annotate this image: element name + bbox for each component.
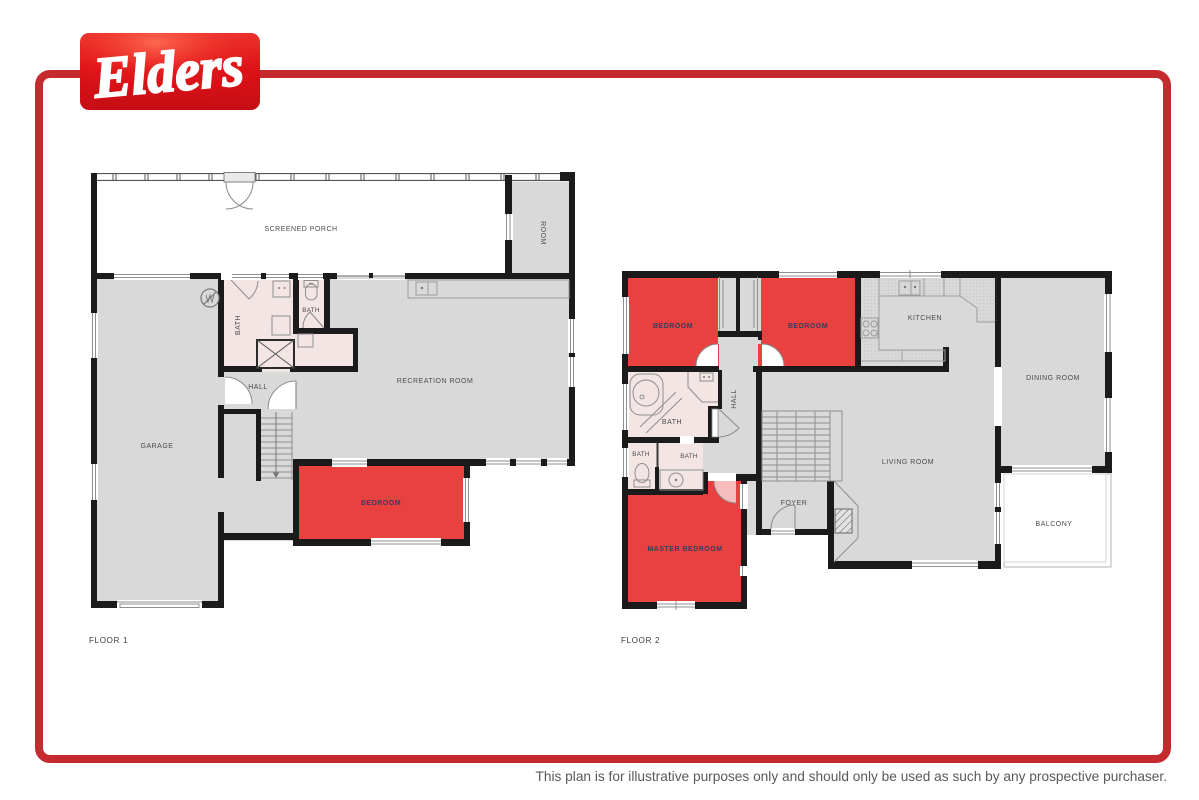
svg-text:KITCHEN: KITCHEN [908,315,942,322]
svg-text:RECREATION ROOM: RECREATION ROOM [397,378,474,385]
svg-text:FLOOR 2: FLOOR 2 [621,636,660,645]
svg-text:BALCONY: BALCONY [1036,521,1073,528]
svg-text:BEDROOM: BEDROOM [653,323,693,330]
svg-text:HALL: HALL [248,384,268,391]
svg-text:BATH: BATH [680,453,698,460]
svg-text:FLOOR 1: FLOOR 1 [89,636,128,645]
svg-text:LIVING ROOM: LIVING ROOM [882,459,934,466]
svg-text:FOYER: FOYER [781,500,808,507]
svg-text:DINING ROOM: DINING ROOM [1026,375,1080,382]
svg-text:HALL: HALL [731,389,738,409]
svg-text:BATH: BATH [235,315,242,335]
svg-text:SCREENED PORCH: SCREENED PORCH [264,226,337,233]
svg-text:BEDROOM: BEDROOM [361,500,401,507]
svg-text:BATH: BATH [302,307,320,314]
svg-text:MASTER BEDROOM: MASTER BEDROOM [647,546,722,553]
svg-text:BATH: BATH [662,419,682,426]
svg-text:Elders: Elders [90,33,246,111]
svg-text:ROOM: ROOM [539,221,546,245]
svg-text:GARAGE: GARAGE [141,443,174,450]
svg-text:BATH: BATH [632,451,650,458]
svg-text:BEDROOM: BEDROOM [788,323,828,330]
svg-text:This plan is for illustrative: This plan is for illustrative purposes o… [536,769,1168,784]
